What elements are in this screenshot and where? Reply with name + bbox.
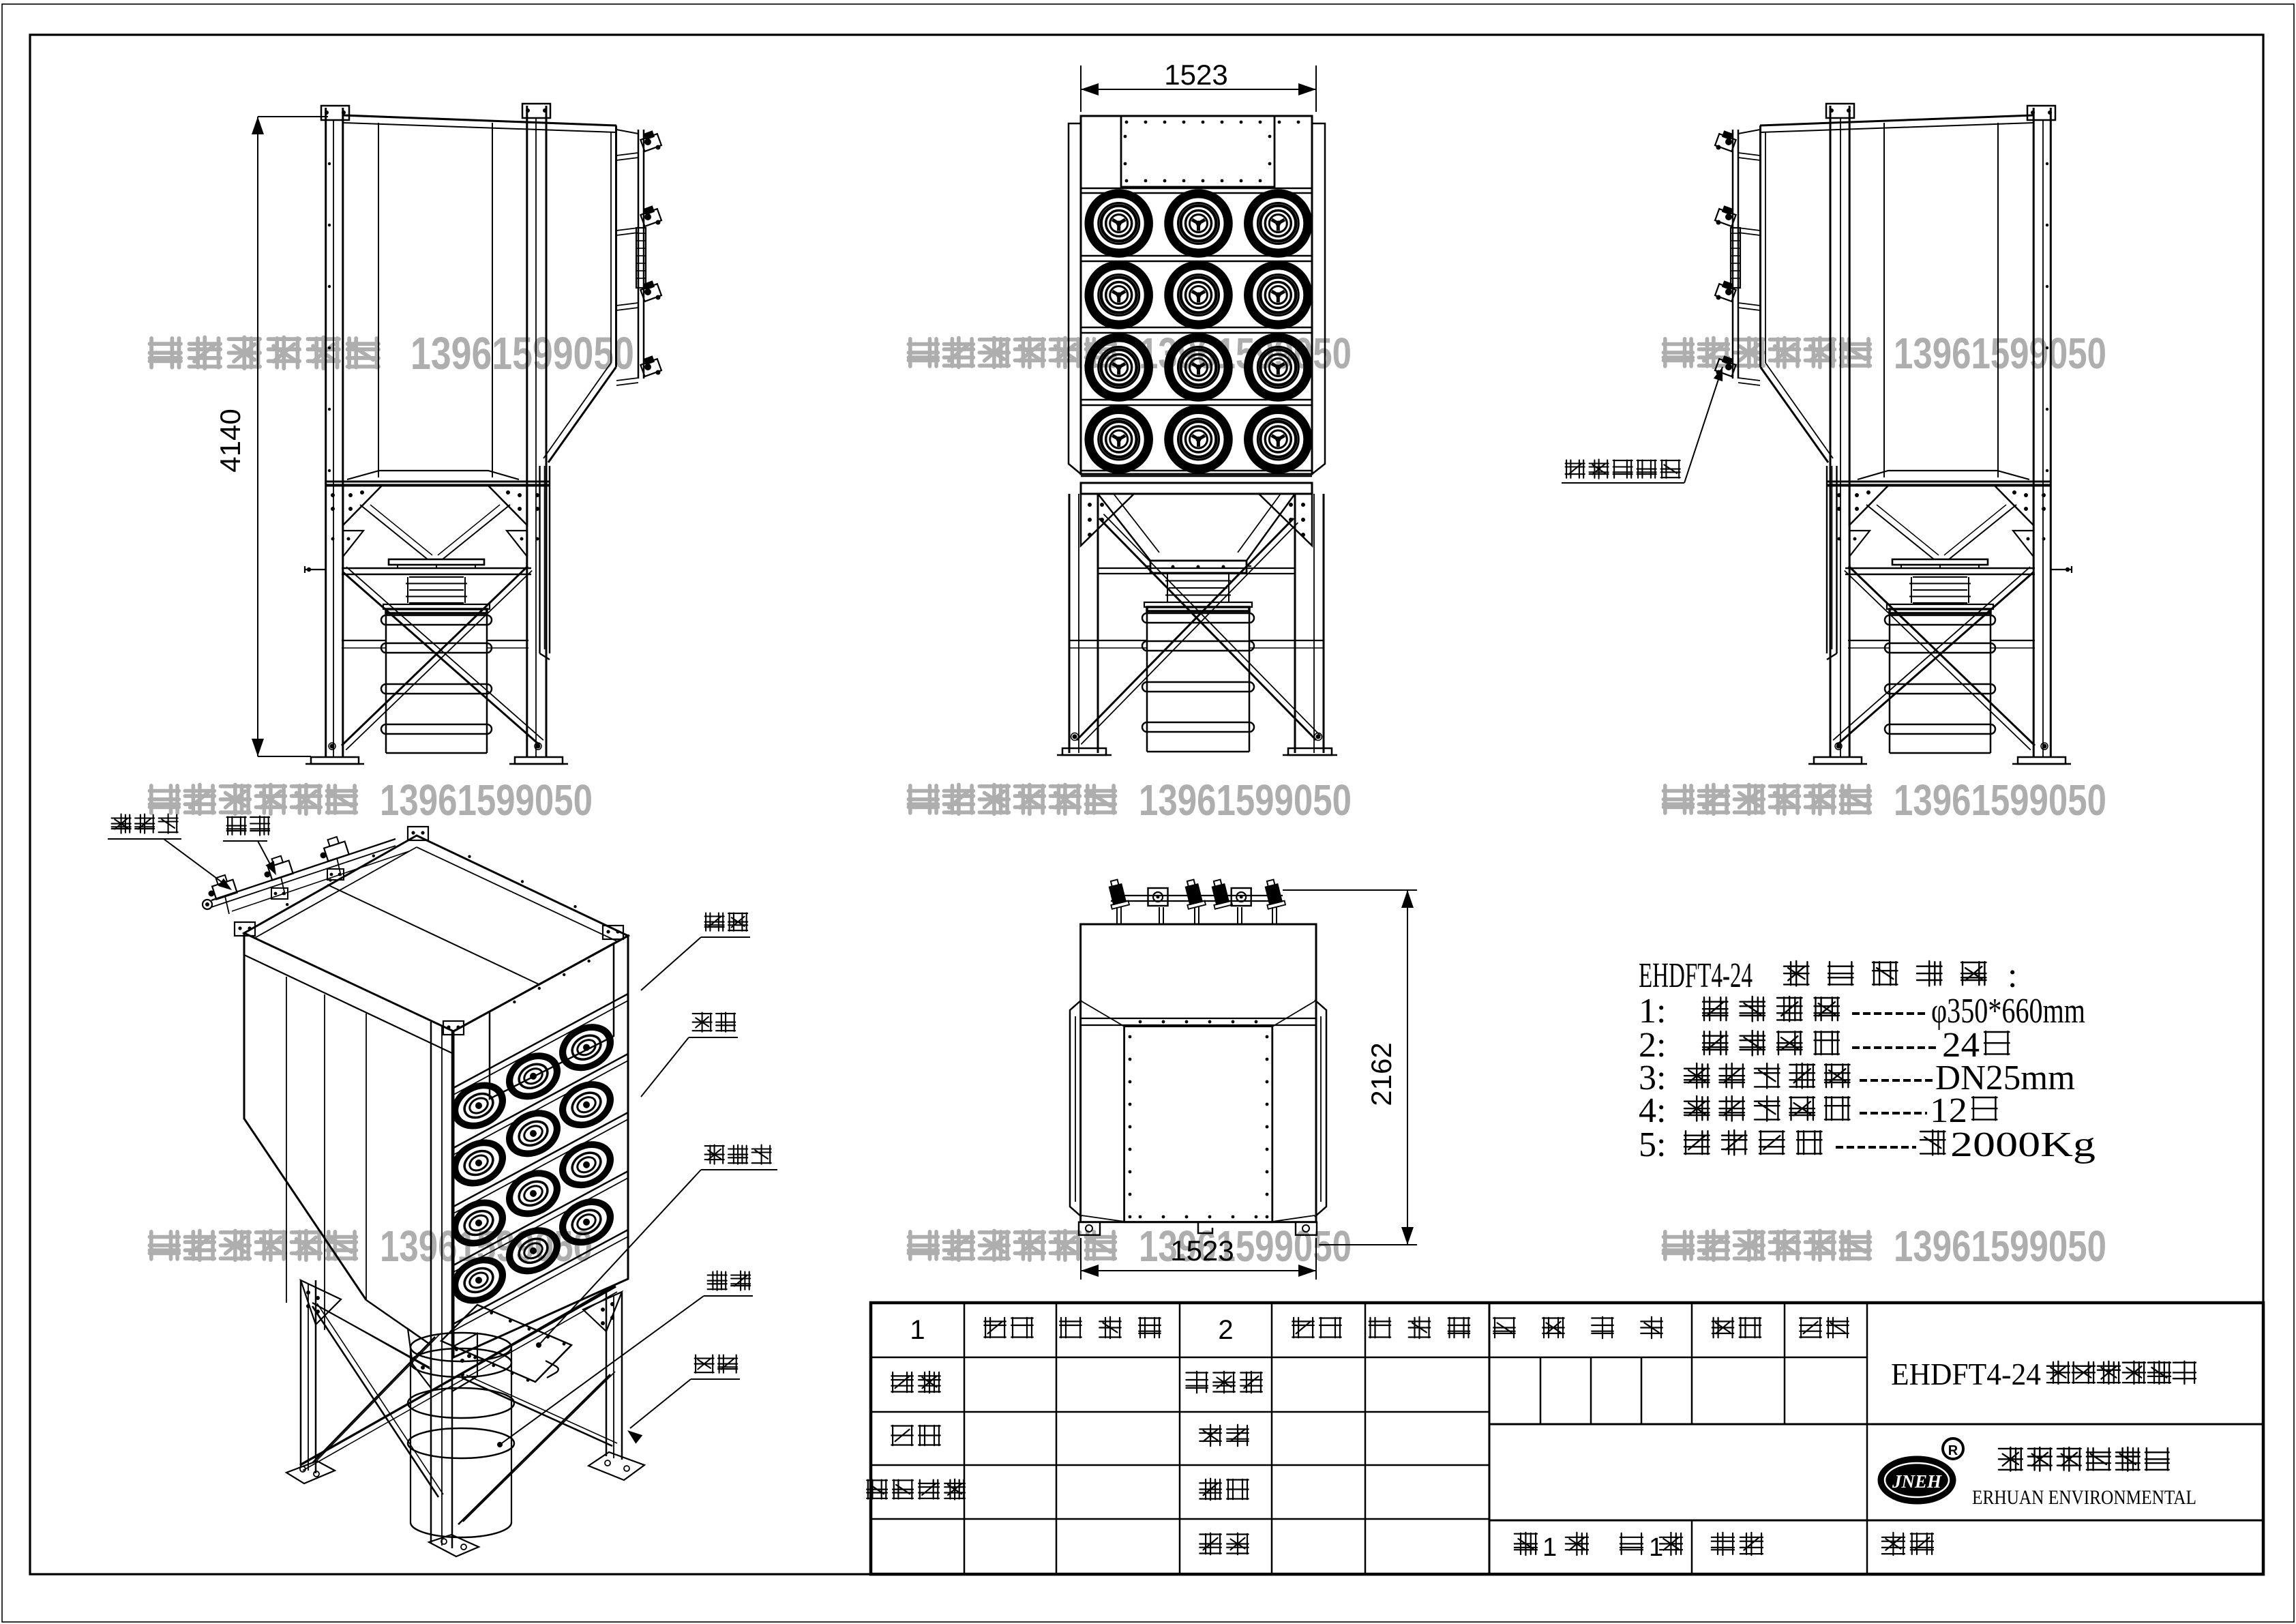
svg-text:JNEH: JNEH [1892,1471,1942,1492]
svg-text:ERHUAN ENVIRONMENTAL: ERHUAN ENVIRONMENTAL [1972,1486,2196,1509]
svg-text::: : [2008,956,2017,995]
svg-text:13961599050: 13961599050 [411,328,634,379]
svg-text:EHDFT4-24: EHDFT4-24 [1639,956,1753,995]
svg-text:EHDFT4-24: EHDFT4-24 [1891,1357,2041,1391]
svg-text:13961599050: 13961599050 [1894,1222,2106,1271]
svg-text:1:: 1: [1639,992,1666,1031]
svg-text:1: 1 [910,1315,925,1345]
svg-text:13961599050: 13961599050 [1894,329,2106,378]
svg-text:13961599050: 13961599050 [1894,776,2106,825]
svg-text:1523: 1523 [1170,1235,1234,1267]
svg-text:R: R [1948,1443,1958,1458]
svg-text:1: 1 [1542,1533,1557,1562]
svg-text:φ350*660mm: φ350*660mm [1931,992,2085,1031]
svg-text:5:: 5: [1639,1125,1666,1164]
svg-text:4140: 4140 [214,409,246,472]
svg-text:12: 12 [1930,1091,1967,1130]
svg-text:13961599050: 13961599050 [1139,776,1352,825]
svg-text:13961599050: 13961599050 [380,776,593,825]
svg-text:2000Kg: 2000Kg [1950,1125,2096,1164]
svg-text:1523: 1523 [1164,59,1227,91]
svg-text:4:: 4: [1639,1091,1666,1130]
svg-text:2162: 2162 [1365,1042,1397,1106]
svg-text:2: 2 [1218,1315,1233,1345]
